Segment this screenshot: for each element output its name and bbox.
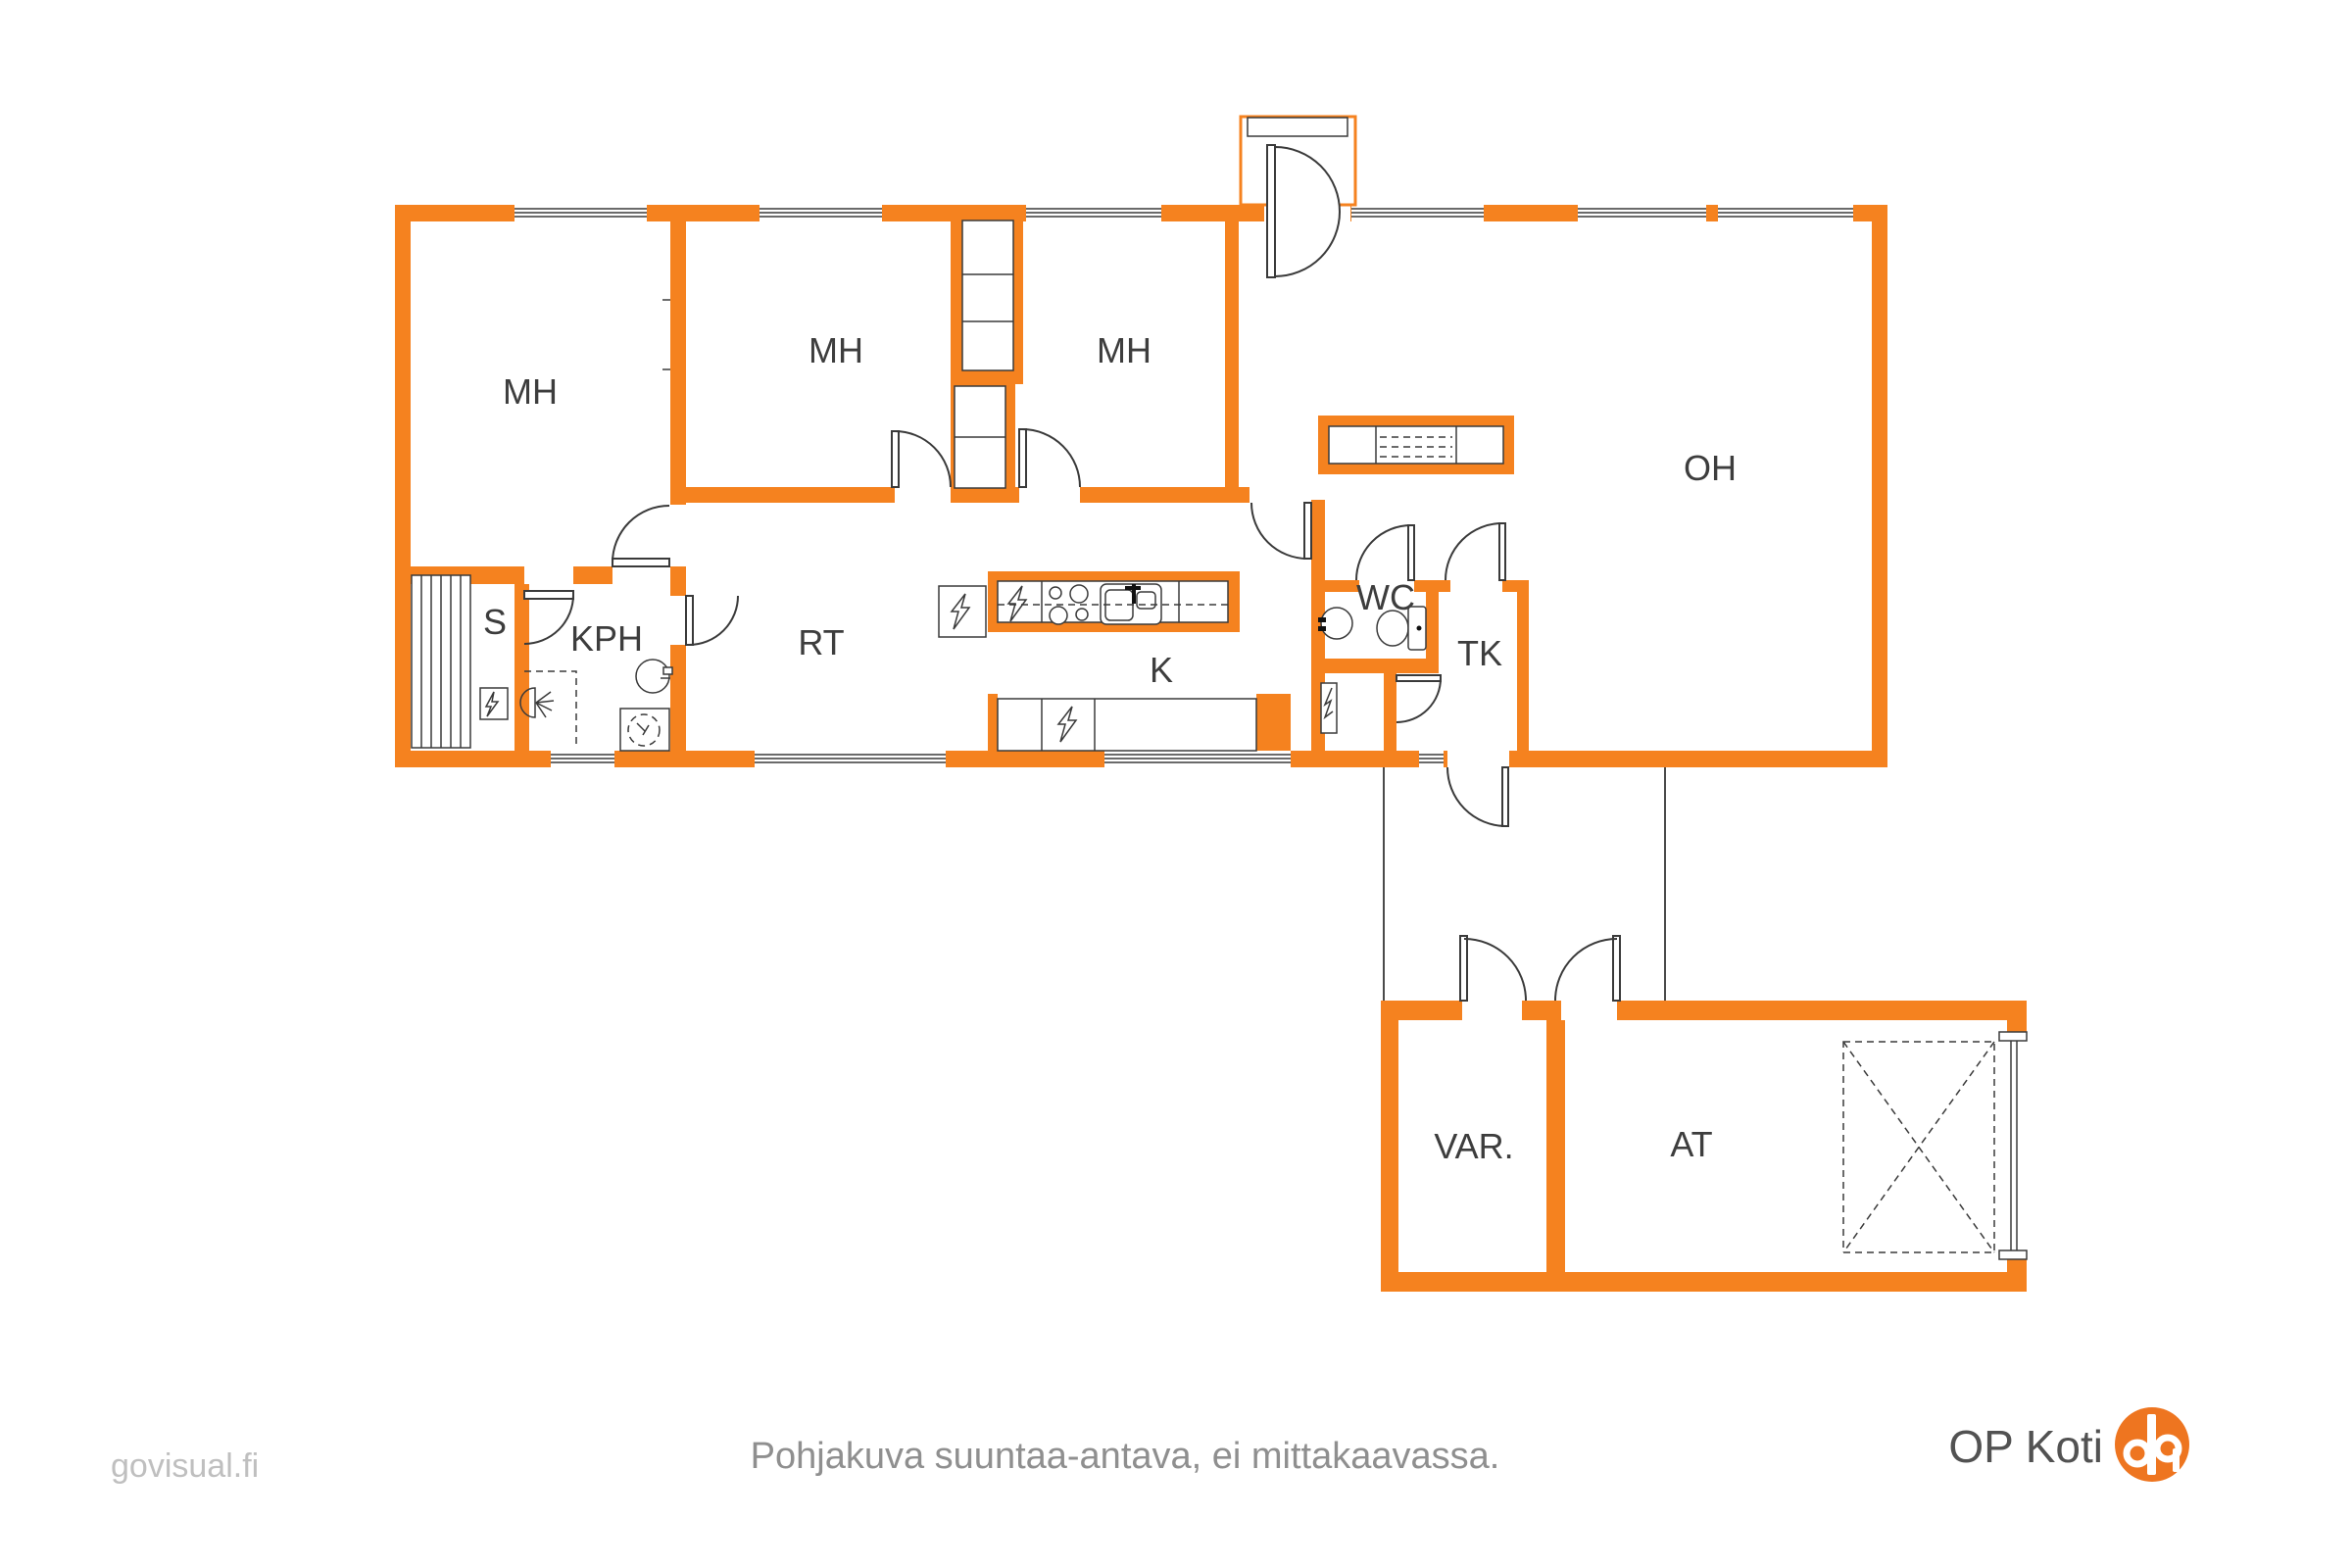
window-icon: [759, 205, 882, 221]
room-label-mh-1: MH: [503, 371, 558, 412]
sauna-kph-fixtures: [412, 575, 672, 751]
main-entrance: [1241, 117, 1355, 277]
garage-wing-doors: [1460, 936, 2027, 1259]
op-koti-logo: OP Koti: [1948, 1407, 2189, 1482]
room-label-tk: TK: [1457, 633, 1502, 673]
window-icon: [514, 205, 647, 221]
door-leaf-utility: [1396, 675, 1441, 681]
room-label-s: S: [483, 602, 507, 642]
door-leaf-mh3: [1019, 429, 1026, 487]
door-leaf-at: [1613, 936, 1620, 1001]
floor-plan-drawing: MH MH MH OH S KPH RT K WC TK VAR. AT Poh…: [0, 0, 2352, 1568]
door-arc-mh3: [1022, 429, 1080, 487]
door-arc-tk: [1445, 523, 1502, 580]
door-leaf-kph: [686, 596, 693, 645]
room-label-kph: KPH: [570, 618, 643, 659]
closet-column: [951, 213, 1023, 499]
kitchen-fixtures: [939, 571, 1291, 751]
op-koti-logo-text: OP Koti: [1948, 1421, 2103, 1472]
room-label-wc: WC: [1356, 577, 1415, 617]
room-label-at: AT: [1670, 1124, 1712, 1164]
front-door-swing: [1275, 147, 1340, 276]
door-arc-rt-oh: [1251, 503, 1307, 559]
room-label-rt: RT: [798, 622, 844, 662]
floor-plan-page: MH MH MH OH S KPH RT K WC TK VAR. AT Poh…: [0, 0, 2352, 1568]
laundry-tub: [636, 660, 672, 693]
govisual-watermark: govisual.fi: [111, 1447, 259, 1485]
window-icon: [1351, 205, 1484, 221]
front-door-leaf: [1267, 145, 1275, 277]
door-arc-mh1: [612, 506, 669, 563]
door-arc-backdoor: [1447, 767, 1505, 826]
door-arc-kph: [689, 596, 738, 645]
room-label-mh-2: MH: [808, 330, 863, 370]
fireplace: [1318, 416, 1514, 474]
window-icon: [1419, 751, 1444, 767]
room-label-var: VAR.: [1434, 1126, 1513, 1166]
door-leaf-mh2: [892, 431, 899, 487]
door-leaf-backdoor: [1502, 767, 1508, 826]
door-arc-wc: [1356, 525, 1411, 580]
door-leaf-tk: [1499, 523, 1505, 580]
window-icon: [1718, 205, 1853, 221]
door-leaf-rt-oh: [1304, 503, 1311, 559]
door-arc-mh2: [895, 431, 951, 487]
disclaimer-caption: Pohjakuva suuntaa-antava, ei mittakaavas…: [751, 1436, 1500, 1477]
window-icon: [755, 751, 946, 767]
garage-parking-cross: [1843, 1042, 1994, 1252]
window-icon: [1026, 205, 1161, 221]
room-label-oh: OH: [1684, 448, 1737, 488]
wardrobe-upper: [962, 220, 1013, 370]
water-heater: [1321, 683, 1337, 733]
room-label-mh-3: MH: [1097, 330, 1151, 370]
floor-drain-square: [620, 709, 669, 751]
door-arc-var: [1464, 939, 1526, 1001]
door-arc-sauna: [524, 595, 573, 644]
door-leaf-wc: [1408, 525, 1414, 580]
entrance-step: [1248, 118, 1347, 136]
window-icon: [551, 751, 614, 767]
yard-passage: [1384, 767, 1665, 1001]
room-label-k: K: [1150, 650, 1173, 690]
kitchen-island: [998, 699, 1256, 751]
door-arc-at: [1555, 939, 1617, 1001]
garage-door: [2011, 1040, 2017, 1252]
window-icon: [1578, 205, 1706, 221]
door-leaf-sauna: [524, 591, 573, 599]
window-icon: [1104, 751, 1291, 767]
windows: [514, 205, 1853, 767]
door-arc-utility: [1396, 678, 1441, 722]
door-leaf-mh1: [612, 559, 669, 566]
exterior-walls-main-block: [395, 205, 1887, 767]
door-leaf-var: [1460, 936, 1467, 1001]
